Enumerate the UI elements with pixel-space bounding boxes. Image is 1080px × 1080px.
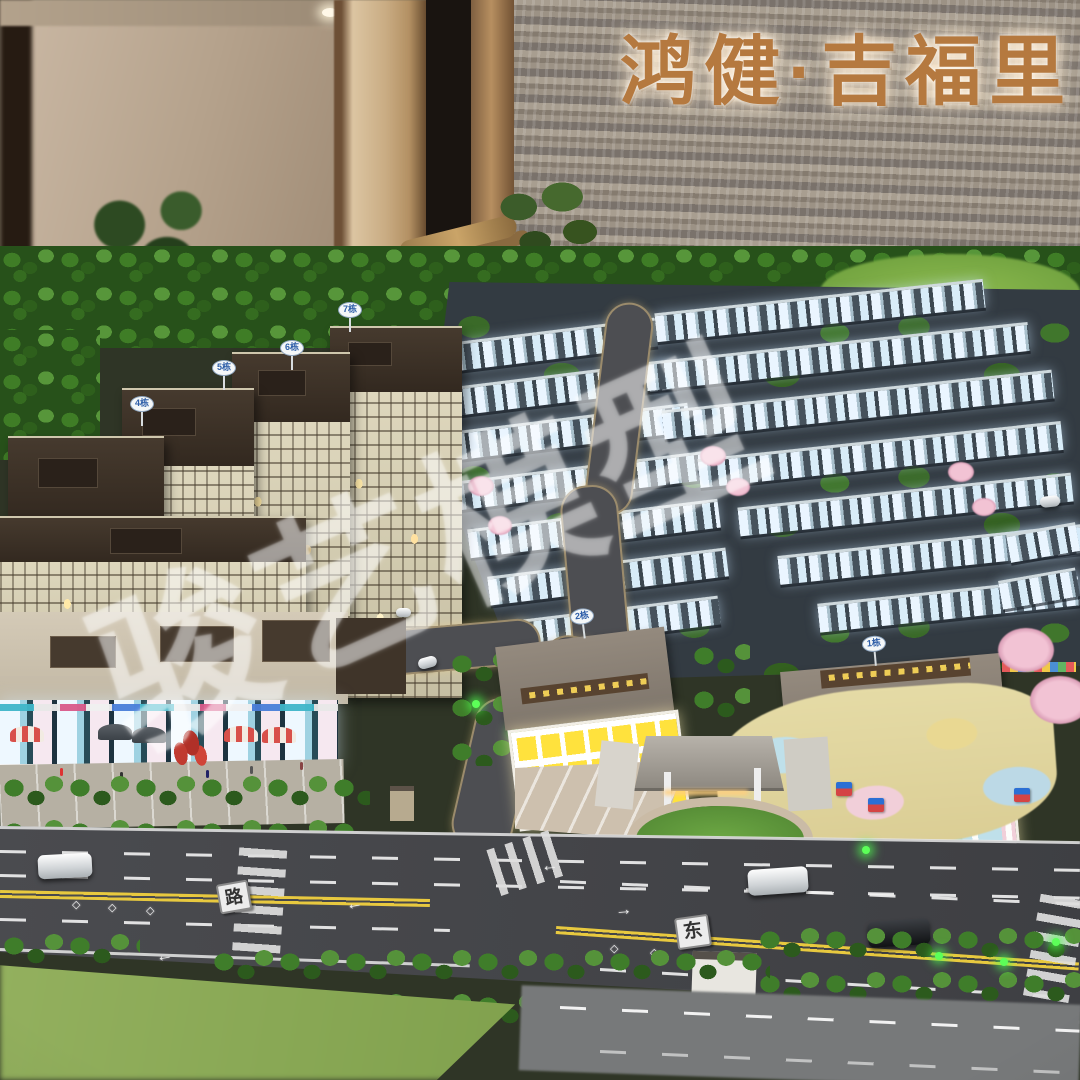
sign-pole bbox=[223, 376, 225, 390]
traffic-signal-green-light bbox=[935, 952, 943, 960]
green-landscape-light bbox=[472, 700, 480, 708]
play-slide bbox=[836, 782, 852, 796]
guard-house bbox=[390, 786, 414, 821]
building-number-sign: 1栋 bbox=[861, 635, 888, 667]
building-number-plate: 2栋 bbox=[569, 607, 595, 626]
gate-pillar bbox=[664, 772, 671, 818]
miniature-person bbox=[300, 762, 303, 770]
gate-side-wall bbox=[595, 740, 640, 810]
project-name-signboard: 鸿健·吉福里 bbox=[620, 10, 1080, 110]
building-number-sign: 2栋 bbox=[569, 607, 596, 640]
building-number-sign: 6栋 bbox=[280, 340, 304, 370]
traffic-signal-green-light bbox=[1000, 958, 1008, 966]
diamond-marking: ◇ bbox=[72, 898, 80, 911]
building-number-sign: 7栋 bbox=[338, 302, 362, 332]
sign-pole bbox=[141, 412, 143, 426]
building-number-sign: 5栋 bbox=[212, 360, 236, 390]
lane-arrow-marking: ↑ bbox=[154, 952, 175, 964]
cherry-blossom-tree bbox=[972, 498, 996, 516]
entrance-gate-canopy bbox=[634, 736, 784, 791]
cherry-blossom-tree bbox=[948, 462, 974, 482]
building-number-plate: 7栋 bbox=[338, 302, 362, 318]
sign-pole bbox=[349, 318, 351, 332]
sign-pole bbox=[874, 652, 877, 666]
building-number-plate: 1栋 bbox=[861, 635, 886, 653]
dark-doorway bbox=[0, 0, 32, 252]
traffic-signal-green-light bbox=[1052, 938, 1060, 946]
cherry-blossom-tree bbox=[998, 628, 1054, 672]
building-number-sign: 4栋 bbox=[130, 396, 154, 426]
play-slide bbox=[1014, 788, 1030, 802]
sign-pole bbox=[582, 624, 586, 638]
building-number-plate: 6栋 bbox=[280, 340, 304, 356]
umbrella bbox=[10, 726, 44, 742]
sign-pole bbox=[291, 356, 293, 370]
building-number-plate: 5栋 bbox=[212, 360, 236, 376]
play-slide bbox=[868, 798, 884, 812]
gate-light-strip bbox=[664, 790, 748, 795]
diamond-marking: ◇ bbox=[146, 904, 154, 917]
diamond-marking: ◇ bbox=[108, 901, 116, 914]
lane-arrow-marking: ↑ bbox=[539, 863, 560, 873]
road-name-plate: 路 bbox=[216, 879, 253, 914]
gate-side-wall bbox=[784, 737, 833, 812]
green-landscape-light bbox=[862, 846, 870, 854]
white-car bbox=[37, 853, 92, 880]
building-number-plate: 4栋 bbox=[130, 396, 154, 412]
road-name-plate: 东 bbox=[674, 914, 712, 950]
white-car bbox=[747, 866, 809, 896]
lane-arrow-marking: ↑ bbox=[614, 907, 635, 917]
garden-trees bbox=[690, 640, 750, 730]
sales-center-model-photo: 鸿健·吉福里 bbox=[0, 0, 1080, 1080]
